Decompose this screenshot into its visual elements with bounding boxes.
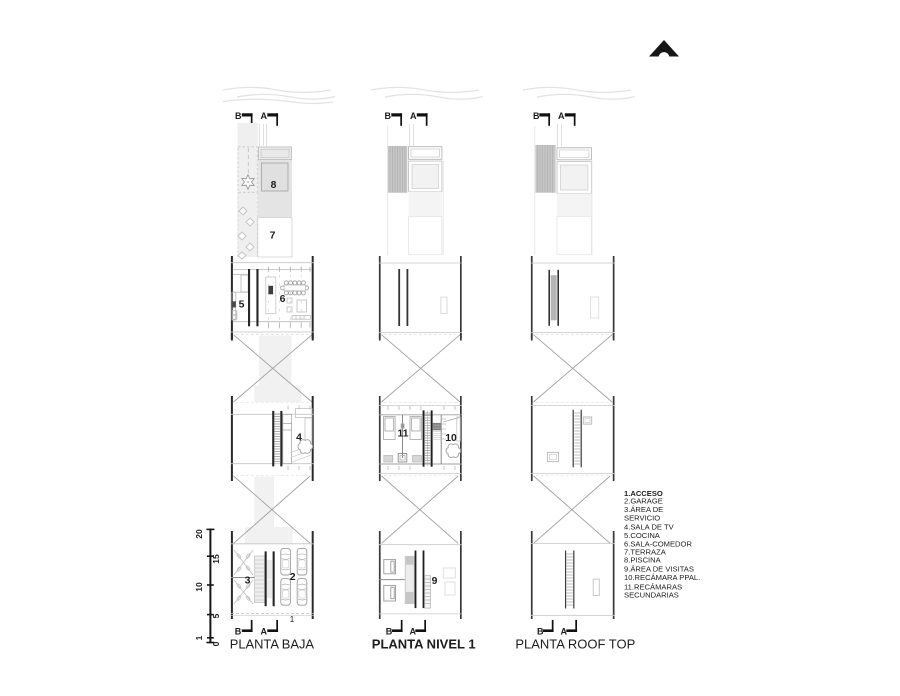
svg-text:0: 0	[211, 641, 221, 646]
svg-text:SECUNDARIAS: SECUNDARIAS	[624, 591, 679, 600]
svg-text:8.PISCINA: 8.PISCINA	[624, 556, 662, 565]
svg-text:B: B	[235, 627, 242, 637]
svg-text:9: 9	[432, 576, 438, 587]
svg-text:B: B	[533, 111, 540, 121]
svg-text:10: 10	[445, 433, 457, 444]
svg-text:A: A	[558, 111, 565, 121]
svg-text:B: B	[385, 111, 392, 121]
svg-text:A: A	[410, 111, 417, 121]
svg-text:PLANTA ROOF TOP: PLANTA ROOF TOP	[515, 637, 635, 652]
svg-text:20: 20	[194, 529, 204, 539]
svg-text:5: 5	[211, 613, 221, 618]
svg-text:3: 3	[245, 575, 251, 587]
svg-text:B: B	[386, 627, 393, 637]
svg-text:PLANTA NIVEL 1: PLANTA NIVEL 1	[372, 637, 476, 652]
svg-text:PLANTA BAJA: PLANTA BAJA	[230, 637, 315, 652]
svg-text:6: 6	[280, 293, 286, 305]
svg-text:A: A	[261, 111, 268, 121]
svg-text:15: 15	[211, 554, 221, 564]
svg-text:A: A	[261, 627, 268, 637]
svg-text:2: 2	[290, 571, 296, 583]
svg-text:8: 8	[271, 180, 277, 191]
svg-text:10: 10	[194, 582, 204, 592]
svg-text:SERVICIO: SERVICIO	[624, 514, 660, 523]
svg-text:B: B	[235, 111, 242, 121]
svg-text:1: 1	[194, 635, 204, 640]
svg-text:10.RECÁMARA PPAL.: 10.RECÁMARA PPAL.	[624, 573, 700, 582]
svg-text:1: 1	[290, 615, 295, 624]
svg-text:11: 11	[398, 429, 409, 440]
svg-text:7: 7	[270, 231, 276, 242]
svg-text:5: 5	[239, 299, 245, 311]
